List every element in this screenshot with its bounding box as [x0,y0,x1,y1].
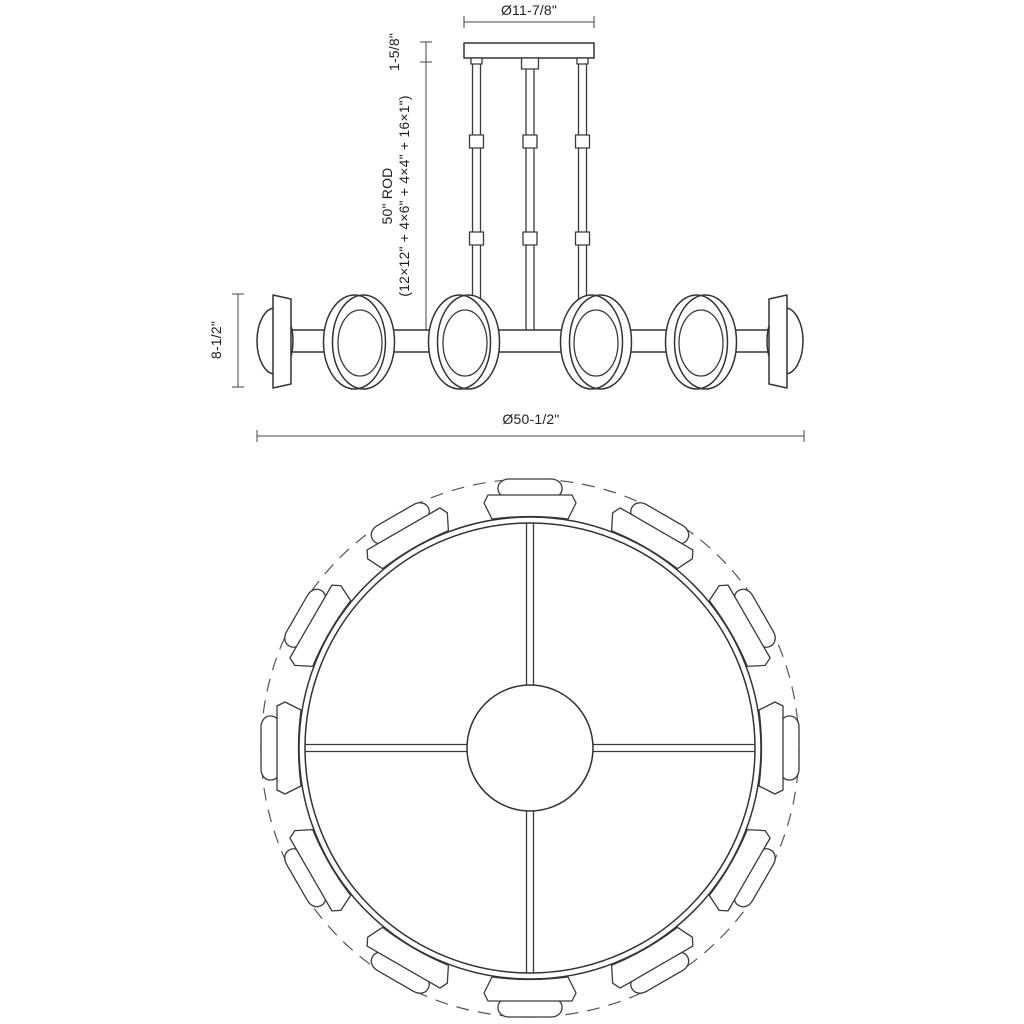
light-pod-6-oclock [484,977,576,1017]
dim-fixture-height: 8-1/2" [208,294,244,387]
rod-coupler [470,232,484,245]
rod-center [526,66,534,334]
canopy-height-label: 1-5/8" [386,33,402,71]
rod-coupler [523,232,537,245]
dome-backplate [769,295,787,388]
hang-rods [470,58,590,334]
fixture-diameter-label: Ø50-1/2" [502,411,559,427]
rod-right [579,58,587,300]
fixture-height-label: 8-1/2" [208,321,224,359]
light-pod-3-oclock [759,702,799,794]
dim-canopy-height: 1-5/8" [386,33,432,71]
canopy-diameter-label: Ø11-7/8" [501,2,557,18]
rod-left [473,58,481,300]
ring-light [561,295,632,389]
rod-coupler [576,135,590,148]
center-hub [467,685,593,811]
end-light-left [257,295,293,388]
ring-light [429,295,500,389]
ceiling-canopy [464,43,594,58]
top-plan-view [261,479,799,1017]
rod-center-connector [522,58,539,69]
spec-sheet-page: Ø11-7/8" 1-5/8" [0,0,1024,1024]
rod-breakdown-label: (12×12" + 4×6" + 4×4" + 16×1") [396,95,412,296]
ring-light [666,295,737,389]
dim-rod-length: 50" ROD (12×12" + 4×6" + 4×4" + 16×1") [379,62,433,330]
dim-fixture-diameter: Ø50-1/2" [257,411,804,442]
side-elevation-view: Ø11-7/8" 1-5/8" [208,2,804,442]
rod-right-cap [577,58,588,64]
ring-light [324,295,395,389]
rod-length-label: 50" ROD [379,168,395,225]
rod-coupler [523,135,537,148]
chandelier-dimension-diagram: Ø11-7/8" 1-5/8" [0,0,1024,1024]
rod-left-cap [471,58,482,64]
end-light-right [767,295,803,388]
dim-canopy-diameter: Ø11-7/8" [464,2,594,28]
light-pod-9-oclock [261,702,301,794]
rod-coupler [470,135,484,148]
rod-coupler [576,232,590,245]
dome-backplate [273,295,291,388]
light-pod-12-oclock [484,479,576,519]
